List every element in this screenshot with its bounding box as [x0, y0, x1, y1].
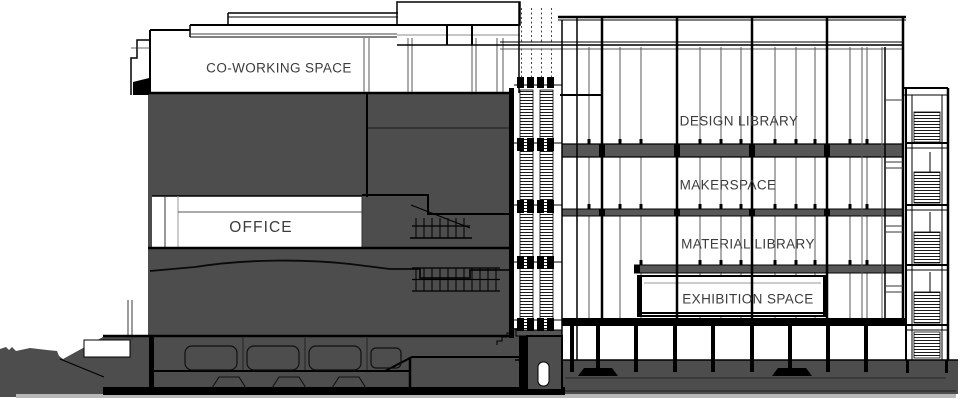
floor-slab — [634, 265, 903, 273]
floor-slab — [562, 209, 903, 216]
roof-penthouse — [397, 2, 520, 25]
room-label-coworking: CO-WORKING SPACE — [206, 61, 352, 76]
escalator-rails — [514, 8, 562, 331]
floor-slab — [562, 144, 903, 157]
room-label-makerspace: MAKERSPACE — [680, 178, 777, 193]
room-label-material-library: MATERIAL LIBRARY — [681, 237, 815, 252]
section-sheet: CO-WORKING SPACE OFFICE DESIGN LIBRARY M… — [0, 0, 960, 402]
room-label-office: OFFICE — [229, 219, 292, 237]
room-label-design-library: DESIGN LIBRARY — [680, 114, 799, 129]
building-section-drawing — [0, 0, 960, 402]
pit-buffer — [538, 362, 549, 386]
coworking-window-mullions — [364, 38, 503, 92]
facade-transoms — [885, 100, 903, 292]
room-label-exhibition-space: EXHIBITION SPACE — [682, 292, 813, 307]
